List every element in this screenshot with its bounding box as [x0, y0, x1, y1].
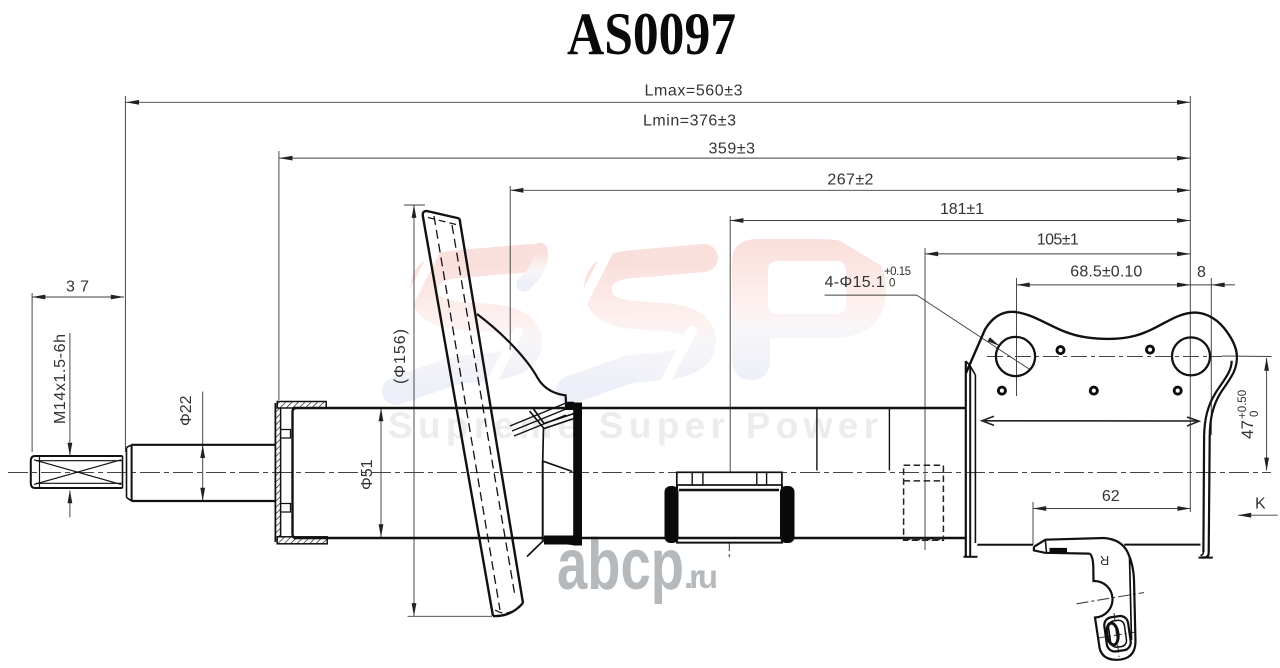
svg-text:AS0097: AS0097: [567, 1, 736, 67]
svg-text:+0.15: +0.15: [884, 266, 911, 278]
svg-text:181±1: 181±1: [940, 201, 984, 218]
svg-text:Φ51: Φ51: [359, 459, 376, 490]
svg-text:(Φ156): (Φ156): [392, 329, 409, 384]
svg-text:37: 37: [66, 279, 89, 296]
svg-text:267±2: 267±2: [827, 172, 873, 189]
svg-text:.ru: .ru: [684, 558, 718, 595]
svg-text:47: 47: [1238, 420, 1257, 439]
svg-text:Φ22: Φ22: [178, 395, 195, 426]
svg-text:0: 0: [889, 278, 895, 290]
svg-text:4-Φ15.1: 4-Φ15.1: [825, 274, 885, 291]
svg-text:+0.50: +0.50: [1237, 390, 1249, 419]
svg-text:0: 0: [1249, 411, 1261, 417]
svg-text:68.5±0.10: 68.5±0.10: [1070, 264, 1142, 281]
svg-text:Lmax=560±3: Lmax=560±3: [645, 83, 743, 100]
svg-text:62: 62: [1102, 488, 1120, 505]
svg-text:R: R: [1100, 553, 1109, 568]
svg-text:K: K: [1255, 496, 1266, 513]
svg-text:8: 8: [1197, 264, 1206, 281]
svg-text:105±1: 105±1: [1037, 232, 1079, 249]
svg-text:359±3: 359±3: [709, 141, 756, 158]
svg-text:M14x1.5-6h: M14x1.5-6h: [52, 334, 69, 424]
svg-text:Lmin=376±3: Lmin=376±3: [643, 113, 736, 130]
